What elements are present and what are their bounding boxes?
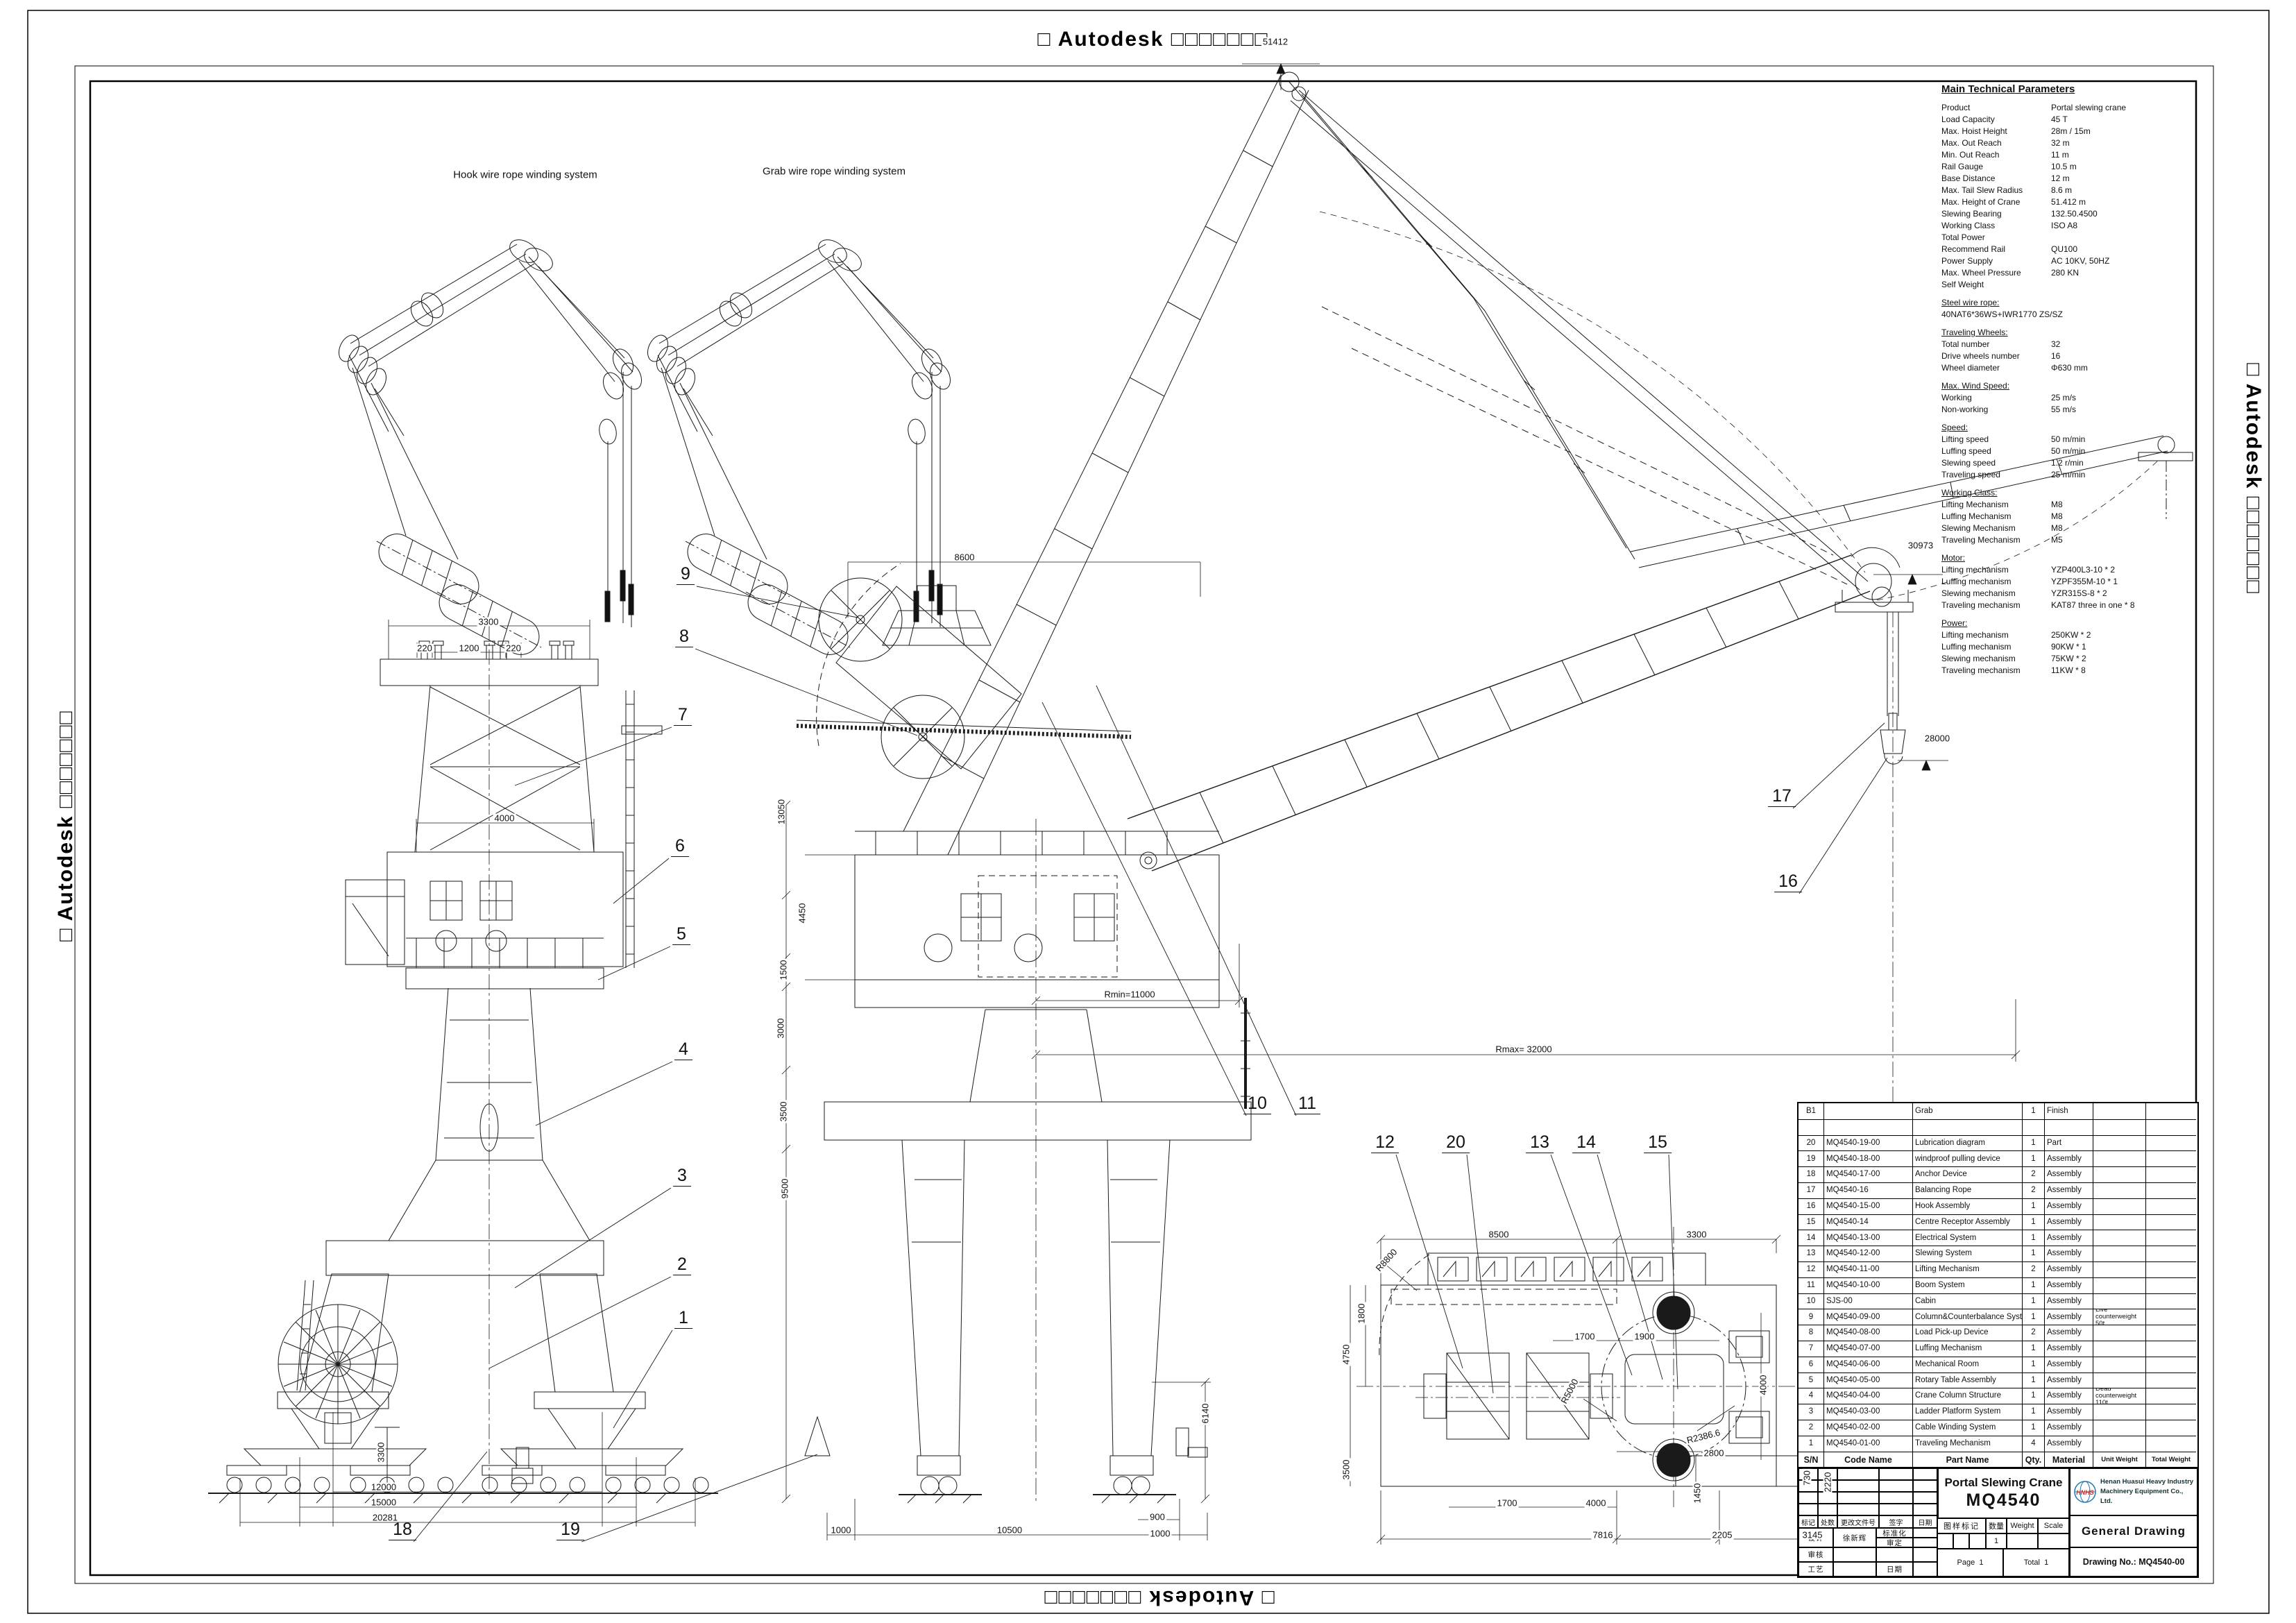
dimension-label: 12000 bbox=[370, 1483, 398, 1492]
tech-params-row: Recommend RailQU100 bbox=[1941, 244, 2200, 255]
table-row: 2MQ4540-02-00Cable Winding System1Assemb… bbox=[1798, 1420, 2197, 1436]
callout-number: 11 bbox=[1294, 1095, 1320, 1114]
tech-params-line: 40NAT6*36WS+IWR1770 ZS/SZ bbox=[1941, 309, 2200, 321]
table-row: 5MQ4540-05-00Rotary Table Assembly1Assem… bbox=[1798, 1373, 2197, 1388]
dimension-label: 220 bbox=[504, 644, 522, 653]
callout-number: 5 bbox=[672, 926, 690, 945]
tech-params-row: Luffing mechanismYZPF355M-10 * 1 bbox=[1941, 576, 2200, 588]
param-label: Self Weight bbox=[1941, 279, 2051, 291]
bom-sn-cell: B1 bbox=[1798, 1103, 1823, 1119]
bom-part-cell: Balancing Rope bbox=[1912, 1182, 2022, 1198]
dimension-label: 4450 bbox=[798, 902, 807, 925]
tech-params-row: Power SupplyAC 10KV, 50HZ bbox=[1941, 255, 2200, 267]
bom-code-cell: MQ4540-14 bbox=[1823, 1214, 1912, 1230]
revision-empty-cell bbox=[1837, 1492, 1879, 1504]
param-value: 90KW * 1 bbox=[2051, 641, 2200, 653]
revision-label-cell: 标记 bbox=[1798, 1515, 1818, 1528]
buffer-device bbox=[375, 1427, 533, 1492]
revision-label-cell: 签字 bbox=[1879, 1515, 1913, 1528]
bom-material-cell: Assembly bbox=[2044, 1166, 2093, 1182]
bom-code-cell: MQ4540-12-00 bbox=[1823, 1246, 1912, 1261]
revision-empty-cell bbox=[1837, 1480, 1879, 1492]
table-row bbox=[1798, 1119, 2197, 1135]
bom-qty-cell: 1 bbox=[2022, 1103, 2044, 1119]
bom-remark-cell bbox=[2093, 1373, 2145, 1388]
param-label: Working bbox=[1941, 392, 2051, 404]
param-value: 51.412 m bbox=[2051, 196, 2200, 208]
bom-qty-cell: 1 bbox=[2022, 1135, 2044, 1151]
dimension-label: 730 bbox=[1803, 1469, 1812, 1487]
param-value: Portal slewing crane bbox=[2051, 102, 2200, 114]
bom-sn-cell: 14 bbox=[1798, 1230, 1823, 1246]
callout-number: 2 bbox=[673, 1256, 691, 1275]
cable-reel bbox=[278, 1305, 398, 1443]
drawing-type-cell: General Drawing bbox=[2069, 1515, 2197, 1547]
table-row: 6MQ4540-06-00Mechanical Room1Assembly bbox=[1798, 1357, 2197, 1373]
bom-part-cell: Lubrication diagram bbox=[1912, 1135, 2022, 1151]
dimension-label: 8600 bbox=[953, 553, 976, 562]
table-row: 18MQ4540-17-00Anchor Device2Assembly bbox=[1798, 1166, 2197, 1182]
product-model: MQ4540 bbox=[1966, 1490, 2041, 1511]
table-row: 17MQ4540-16Balancing Rope2Assembly bbox=[1798, 1182, 2197, 1198]
hook-winding-diagram bbox=[335, 235, 645, 663]
param-label: Luffing Mechanism bbox=[1941, 511, 2051, 522]
boom-raised-position bbox=[1322, 307, 1847, 584]
callout-leader-line bbox=[1096, 686, 1296, 1116]
title-block-product-cell: Portal Slewing Crane MQ4540 bbox=[1937, 1468, 2069, 1518]
callout-number: 12 bbox=[1371, 1134, 1399, 1153]
dimension-label: 1900 bbox=[1633, 1332, 1656, 1341]
bom-code-cell: MQ4540-16 bbox=[1823, 1182, 1912, 1198]
param-value: 25 m/s bbox=[2051, 392, 2200, 404]
check-label-cell: 审核 bbox=[1798, 1547, 1833, 1562]
param-label: Product bbox=[1941, 102, 2051, 114]
revision-empty-cell bbox=[1913, 1480, 1937, 1492]
dimension-label: Rmax= 32000 bbox=[1494, 1045, 1553, 1054]
bom-header-sn: S/N bbox=[1798, 1452, 1823, 1468]
revision-label-cell: 更改文件号 bbox=[1837, 1515, 1879, 1528]
scale-value-cell bbox=[2038, 1533, 2069, 1549]
bom-remark-cell: Dead counterweight 110t bbox=[2093, 1388, 2145, 1404]
bom-part-cell: Lifting Mechanism bbox=[1912, 1261, 2022, 1277]
tie-rods bbox=[1291, 90, 1868, 590]
page-label: Page bbox=[1957, 1558, 1975, 1567]
boom-tip bbox=[1835, 547, 1913, 612]
param-value: QU100 bbox=[2051, 244, 2200, 255]
bom-sn-cell: 18 bbox=[1798, 1166, 1823, 1182]
bom-qty-cell: 2 bbox=[2022, 1261, 2044, 1277]
main-boom bbox=[1128, 555, 1870, 871]
bom-sn-cell: 3 bbox=[1798, 1404, 1823, 1420]
bom-code-cell: MQ4540-15-00 bbox=[1823, 1198, 1912, 1214]
bom-weight-cell bbox=[2145, 1388, 2196, 1404]
bom-code-cell: MQ4540-02-00 bbox=[1823, 1420, 1912, 1436]
param-value: 132.50.4500 bbox=[2051, 208, 2200, 220]
sig-empty-cell bbox=[1913, 1528, 1937, 1538]
callout-leader-line bbox=[1799, 758, 1887, 894]
slewing-platform-side bbox=[406, 938, 604, 989]
tech-params-row: Slewing mechanismYZR315S-8 * 2 bbox=[1941, 588, 2200, 600]
bom-weight-cell bbox=[2145, 1404, 2196, 1420]
tech-params-row: Working ClassISO A8 bbox=[1941, 220, 2200, 232]
callout-leader-line bbox=[515, 727, 672, 785]
bom-sn-cell: 13 bbox=[1798, 1246, 1823, 1261]
tech-params-section: ProductPortal slewing craneLoad Capacity… bbox=[1941, 102, 2200, 291]
bom-sn-cell: 17 bbox=[1798, 1182, 1823, 1198]
bom-sn-cell: 16 bbox=[1798, 1198, 1823, 1214]
revision-empty-cell bbox=[1798, 1504, 1818, 1515]
bom-part-cell: Centre Receptor Assembly bbox=[1912, 1214, 2022, 1230]
qty-value-cell: 1 bbox=[1986, 1533, 2007, 1549]
bom-sn-cell: 9 bbox=[1798, 1309, 1823, 1325]
bom-weight-cell bbox=[2145, 1198, 2196, 1214]
watermark-left: □ Autodesk □□□□□□□ bbox=[54, 710, 78, 941]
bom-weight-cell bbox=[2145, 1150, 2196, 1166]
callout-leader-line bbox=[1793, 723, 1885, 808]
side-dim-lines bbox=[240, 620, 695, 1527]
bom-remark-cell bbox=[2093, 1150, 2145, 1166]
bom-qty-cell: 4 bbox=[2022, 1436, 2044, 1452]
param-label: Lifting mechanism bbox=[1941, 564, 2051, 576]
dimension-label: 3300 bbox=[1685, 1230, 1708, 1239]
bom-remark-cell bbox=[2093, 1261, 2145, 1277]
table-row: 9MQ4540-09-00Column&Counterbalance Syste… bbox=[1798, 1309, 2197, 1325]
bom-part-cell: Grab bbox=[1912, 1103, 2022, 1119]
bom-material-cell: Assembly bbox=[2044, 1373, 2093, 1388]
tech-params-row: Traveling speed25 m/min bbox=[1941, 469, 2200, 481]
dimension-label: 4000 bbox=[493, 814, 516, 823]
scale-label-cell: Scale bbox=[2038, 1518, 2069, 1533]
dimension-label: 13050 bbox=[777, 798, 786, 826]
callout-number: 7 bbox=[674, 706, 692, 726]
param-value bbox=[2051, 279, 2200, 291]
date-label-cell: 日期 bbox=[1876, 1562, 1913, 1577]
total-cell: Total 1 bbox=[2003, 1549, 2069, 1577]
company-line1: Henan Huasui Heavy Industry bbox=[2100, 1478, 2193, 1486]
tech-params-heading: Speed: bbox=[1941, 422, 2200, 434]
bom-remark-cell bbox=[2093, 1135, 2145, 1151]
callout-number: 16 bbox=[1774, 873, 1802, 892]
bom-qty-cell: 1 bbox=[2022, 1341, 2044, 1357]
portal-front bbox=[805, 998, 1251, 1503]
dimension-label: 1700 bbox=[1496, 1499, 1519, 1508]
bom-qty-cell: 1 bbox=[2022, 1277, 2044, 1293]
param-label: Total number bbox=[1941, 339, 2051, 350]
dimension-label: 3145 bbox=[1801, 1531, 1824, 1540]
table-row: 3MQ4540-03-00Ladder Platform System1Asse… bbox=[1798, 1404, 2197, 1420]
bom-remark-cell bbox=[2093, 1420, 2145, 1436]
bom-sn-cell: 10 bbox=[1798, 1293, 1823, 1309]
tech-params-row: Non-working55 m/s bbox=[1941, 404, 2200, 416]
param-value: YZR315S-8 * 2 bbox=[2051, 588, 2200, 600]
company-cell: HNHS Henan Huasui Heavy Industry Machine… bbox=[2069, 1468, 2197, 1515]
tech-params-row: Max. Height of Crane51.412 m bbox=[1941, 196, 2200, 208]
callout-number: 15 bbox=[1644, 1134, 1672, 1153]
callout-leader-line bbox=[613, 858, 669, 903]
dimension-label: 30973 bbox=[1907, 541, 1934, 550]
revision-empty-cell bbox=[1879, 1492, 1913, 1504]
bom-qty-cell: 1 bbox=[2022, 1293, 2044, 1309]
param-value: 50 m/min bbox=[2051, 445, 2200, 457]
param-value: 55 m/s bbox=[2051, 404, 2200, 416]
param-label: Lifting mechanism bbox=[1941, 629, 2051, 641]
tech-params-row: Max. Tail Slew Radius8.6 m bbox=[1941, 185, 2200, 196]
dimension-label: 220 bbox=[416, 644, 434, 653]
callout-number: 20 bbox=[1442, 1134, 1470, 1153]
param-value: M8 bbox=[2051, 499, 2200, 511]
dimension-label: 3500 bbox=[779, 1101, 788, 1123]
tech-params-section: Power:Lifting mechanism250KW * 2Luffing … bbox=[1941, 618, 2200, 677]
param-label: Luffing mechanism bbox=[1941, 641, 2051, 653]
param-label: Load Capacity bbox=[1941, 114, 2051, 126]
bom-weight-cell bbox=[2145, 1103, 2196, 1119]
bom-weight-cell bbox=[2145, 1119, 2196, 1135]
bom-remark-cell bbox=[2093, 1182, 2145, 1198]
bom-header-part: Part Name bbox=[1912, 1452, 2022, 1468]
tech-params-row: Drive wheels number16 bbox=[1941, 350, 2200, 362]
watermark-bottom: □ Autodesk □□□□□□□ bbox=[1043, 1586, 1274, 1609]
bom-material-cell: Assembly bbox=[2044, 1420, 2093, 1436]
bom-code-cell: MQ4540-01-00 bbox=[1823, 1436, 1912, 1452]
param-label: Max. Height of Crane bbox=[1941, 196, 2051, 208]
bom-remark-cell: Live counterweight 50t bbox=[2093, 1309, 2145, 1325]
bom-header-unitweight: Unit Weight bbox=[2093, 1452, 2145, 1468]
bom-material-cell: Assembly bbox=[2044, 1277, 2093, 1293]
param-value: 25 m/min bbox=[2051, 469, 2200, 481]
param-label: Recommend Rail bbox=[1941, 244, 2051, 255]
dimension-label: 9500 bbox=[781, 1178, 790, 1200]
tech-params-row: Load Capacity45 T bbox=[1941, 114, 2200, 126]
bom-remark-cell bbox=[2093, 1404, 2145, 1420]
param-value: 75KW * 2 bbox=[2051, 653, 2200, 665]
bom-material-cell bbox=[2044, 1119, 2093, 1135]
callout-leader-line bbox=[489, 1277, 671, 1368]
param-value: KAT87 three in one * 8 bbox=[2051, 600, 2200, 611]
table-row: 19MQ4540-18-00windproof pulling device1A… bbox=[1798, 1150, 2197, 1166]
tech-params-row: Traveling MechanismM5 bbox=[1941, 534, 2200, 546]
dimension-label: 1800 bbox=[1357, 1302, 1366, 1325]
bom-part-cell: Load Pick-up Device bbox=[1912, 1325, 2022, 1341]
tech-params-section: Steel wire rope:40NAT6*36WS+IWR1770 ZS/S… bbox=[1941, 297, 2200, 321]
bom-qty-cell: 1 bbox=[2022, 1150, 2044, 1166]
bom-part-cell: Ladder Platform System bbox=[1912, 1404, 2022, 1420]
param-label: Max. Wheel Pressure bbox=[1941, 267, 2051, 279]
hoist-winches-plan bbox=[1415, 1353, 1620, 1439]
param-label: Lifting Mechanism bbox=[1941, 499, 2051, 511]
param-value: YZPF355M-10 * 1 bbox=[2051, 576, 2200, 588]
param-label: Min. Out Reach bbox=[1941, 149, 2051, 161]
bom-remark-cell bbox=[2093, 1341, 2145, 1357]
bom-remark-cell bbox=[2093, 1246, 2145, 1261]
tech-params-row: Max. Out Reach32 m bbox=[1941, 137, 2200, 149]
param-value: 280 KN bbox=[2051, 267, 2200, 279]
bom-code-cell: MQ4540-05-00 bbox=[1823, 1373, 1912, 1388]
bom-sn-cell: 12 bbox=[1798, 1261, 1823, 1277]
param-label: Max. Out Reach bbox=[1941, 137, 2051, 149]
bom-code-cell: MQ4540-10-00 bbox=[1823, 1277, 1912, 1293]
param-value: Φ630 mm bbox=[2051, 362, 2200, 374]
tech-params-section: Motor:Lifting mechanismYZP400L3-10 * 2Lu… bbox=[1941, 552, 2200, 611]
tech-params-row: Traveling mechanismKAT87 three in one * … bbox=[1941, 600, 2200, 611]
bom-code-cell: MQ4540-18-00 bbox=[1823, 1150, 1912, 1166]
bom-code-cell: MQ4540-06-00 bbox=[1823, 1357, 1912, 1373]
bom-sn-cell bbox=[1798, 1119, 1823, 1135]
bom-sn-cell: 5 bbox=[1798, 1373, 1823, 1388]
weight-value-cell bbox=[2007, 1533, 2038, 1549]
revision-empty-cell bbox=[1913, 1468, 1937, 1480]
callout-number: 6 bbox=[671, 838, 689, 857]
param-value: 12 m bbox=[2051, 173, 2200, 185]
tech-params-row: Luffing MechanismM8 bbox=[1941, 511, 2200, 522]
bom-weight-cell bbox=[2145, 1182, 2196, 1198]
tech-params-row: Wheel diameterΦ630 mm bbox=[1941, 362, 2200, 374]
tech-params-row: Slewing mechanism75KW * 2 bbox=[1941, 653, 2200, 665]
callout-number: 1 bbox=[674, 1309, 692, 1329]
bom-part-cell: Anchor Device bbox=[1912, 1166, 2022, 1182]
dimension-label: 1700 bbox=[1574, 1332, 1597, 1341]
revision-empty-cell bbox=[1837, 1504, 1879, 1515]
hook-winding-label: Hook wire rope winding system bbox=[453, 169, 597, 181]
param-label: Slewing Bearing bbox=[1941, 208, 2051, 220]
grab-winding-diagram bbox=[644, 235, 954, 663]
bom-qty-cell: 1 bbox=[2022, 1404, 2044, 1420]
watermark-right: □ Autodesk □□□□□□□ bbox=[2241, 363, 2265, 594]
dimension-label: Rmin=11000 bbox=[1103, 990, 1156, 999]
bom-sn-cell: 6 bbox=[1798, 1357, 1823, 1373]
param-label: Base Distance bbox=[1941, 173, 2051, 185]
tech-params-row: ProductPortal slewing crane bbox=[1941, 102, 2200, 114]
table-row: 7MQ4540-07-00Luffing Mechanism1Assembly bbox=[1798, 1341, 2197, 1357]
bom-part-cell: Cable Winding System bbox=[1912, 1420, 2022, 1436]
param-value: 10.5 m bbox=[2051, 161, 2200, 173]
drawing-sheet: □ Autodesk □□□□□□□ □ Autodesk □□□□□□□ □ … bbox=[0, 0, 2296, 1623]
product-name: Portal Slewing Crane bbox=[1944, 1475, 2062, 1490]
bom-part-cell: Slewing System bbox=[1912, 1246, 2022, 1261]
bom-code-cell: SJS-00 bbox=[1823, 1293, 1912, 1309]
bom-code-cell: MQ4540-13-00 bbox=[1823, 1230, 1912, 1246]
qty-label-cell: 数量 bbox=[1986, 1518, 2007, 1533]
callout-number: 17 bbox=[1768, 788, 1796, 807]
bom-qty-cell: 1 bbox=[2022, 1357, 2044, 1373]
tech-params-row: Max. Wheel Pressure280 KN bbox=[1941, 267, 2200, 279]
bom-part-cell: Hook Assembly bbox=[1912, 1198, 2022, 1214]
bom-remark-cell bbox=[2093, 1277, 2145, 1293]
bom-qty-cell: 1 bbox=[2022, 1246, 2044, 1261]
param-value: 45 T bbox=[2051, 114, 2200, 126]
bom-remark-cell bbox=[2093, 1198, 2145, 1214]
revision-empty-cell bbox=[1879, 1480, 1913, 1492]
bom-weight-cell bbox=[2145, 1436, 2196, 1452]
sig-empty-cell bbox=[1913, 1538, 1937, 1547]
company-line2: Machinery Equipment Co., Ltd. bbox=[2100, 1488, 2183, 1505]
bom-part-cell: Boom System bbox=[1912, 1277, 2022, 1293]
bom-part-cell: Luffing Mechanism bbox=[1912, 1341, 2022, 1357]
cabin-side bbox=[346, 880, 405, 965]
callout-leader-line bbox=[581, 1454, 817, 1542]
title-block: Portal Slewing Crane MQ4540 图样标记 数量 Weig… bbox=[1797, 1467, 2199, 1578]
page-cell: Page 1 bbox=[1937, 1549, 2003, 1577]
dimension-label: 3500 bbox=[1342, 1459, 1351, 1481]
dimension-label: 3300 bbox=[477, 618, 500, 627]
tech-params-heading: Steel wire rope: bbox=[1941, 297, 2200, 309]
bom-qty-cell: 1 bbox=[2022, 1309, 2044, 1325]
bom-remark-cell bbox=[2093, 1166, 2145, 1182]
param-value: M8 bbox=[2051, 511, 2200, 522]
bom-remark-cell bbox=[2093, 1103, 2145, 1119]
bom-weight-cell bbox=[2145, 1420, 2196, 1436]
param-label: Traveling speed bbox=[1941, 469, 2051, 481]
param-value: ISO A8 bbox=[2051, 220, 2200, 232]
bom-code-cell bbox=[1823, 1119, 1912, 1135]
dimension-label: 2205 bbox=[1711, 1531, 1734, 1540]
designer-name-cell: 徐新辉 bbox=[1833, 1528, 1876, 1547]
callout-leader-line bbox=[697, 586, 858, 618]
table-row: 11MQ4540-10-00Boom System1Assembly bbox=[1798, 1277, 2197, 1293]
tech-params-row: Traveling mechanism11KW * 8 bbox=[1941, 665, 2200, 677]
bom-weight-cell bbox=[2145, 1277, 2196, 1293]
grab-winding-label: Grab wire rope winding system bbox=[763, 166, 905, 178]
tech-params-heading: Traveling Wheels: bbox=[1941, 327, 2200, 339]
ladder-side bbox=[622, 690, 662, 968]
bom-part-cell: Crane Column Structure bbox=[1912, 1388, 2022, 1404]
bom-qty-cell: 2 bbox=[2022, 1325, 2044, 1341]
tech-params-section: Working Class:Lifting MechanismM8Luffing… bbox=[1941, 487, 2200, 546]
bom-weight-cell bbox=[2145, 1214, 2196, 1230]
bom-part-cell: Electrical System bbox=[1912, 1230, 2022, 1246]
dimension-label: 28000 bbox=[1923, 734, 1951, 743]
param-value: 32 bbox=[2051, 339, 2200, 350]
callout-leader-line bbox=[1396, 1155, 1463, 1368]
dimension-label: 3000 bbox=[776, 1017, 785, 1040]
param-label: Luffing mechanism bbox=[1941, 576, 2051, 588]
callout-leader-line bbox=[536, 1062, 672, 1125]
machinery-house-front bbox=[855, 831, 1219, 1008]
bom-weight-cell bbox=[2145, 1230, 2196, 1246]
param-value: M8 bbox=[2051, 522, 2200, 534]
bom-material-cell: Assembly bbox=[2044, 1246, 2093, 1261]
dimension-label: 8500 bbox=[1488, 1230, 1511, 1239]
param-value: 11KW * 8 bbox=[2051, 665, 2200, 677]
revision-empty-cell bbox=[1818, 1504, 1837, 1515]
callout-leader-line bbox=[1467, 1155, 1493, 1393]
tech-params-heading: Power: bbox=[1941, 618, 2200, 629]
tech-params-row: Lifting speed50 m/min bbox=[1941, 434, 2200, 445]
param-value: 50 m/min bbox=[2051, 434, 2200, 445]
plan-view bbox=[1350, 1227, 1849, 1545]
bom-code-cell bbox=[1823, 1103, 1912, 1119]
dimension-label: 1450 bbox=[1693, 1482, 1702, 1505]
stamp-label-cell: 图样标记 bbox=[1937, 1518, 1986, 1533]
tech-params-row: Self Weight bbox=[1941, 279, 2200, 291]
bom-material-cell: Assembly bbox=[2044, 1357, 2093, 1373]
tech-params-heading: Working Class: bbox=[1941, 487, 2200, 499]
dimension-label: 4000 bbox=[1759, 1374, 1768, 1397]
revision-empty-cell bbox=[1837, 1468, 1879, 1480]
drawing-number-cell: Drawing No.: MQ4540-00 bbox=[2069, 1547, 2197, 1577]
table-row: 20MQ4540-19-00Lubrication diagram1Part bbox=[1798, 1135, 2197, 1151]
bom-material-cell: Assembly bbox=[2044, 1325, 2093, 1341]
bom-remark-cell bbox=[2093, 1293, 2145, 1309]
tech-params-row: Max. Hoist Height28m / 15m bbox=[1941, 126, 2200, 137]
bom-remark-cell bbox=[2093, 1357, 2145, 1373]
param-label: Power Supply bbox=[1941, 255, 2051, 267]
revision-empty-cell bbox=[1798, 1492, 1818, 1504]
bom-material-cell: Finish bbox=[2044, 1103, 2093, 1119]
revision-empty-cell bbox=[1913, 1492, 1937, 1504]
bom-weight-cell bbox=[2145, 1325, 2196, 1341]
table-row: B1Grab1Finish bbox=[1798, 1103, 2197, 1119]
bom-material-cell: Assembly bbox=[2044, 1309, 2093, 1325]
